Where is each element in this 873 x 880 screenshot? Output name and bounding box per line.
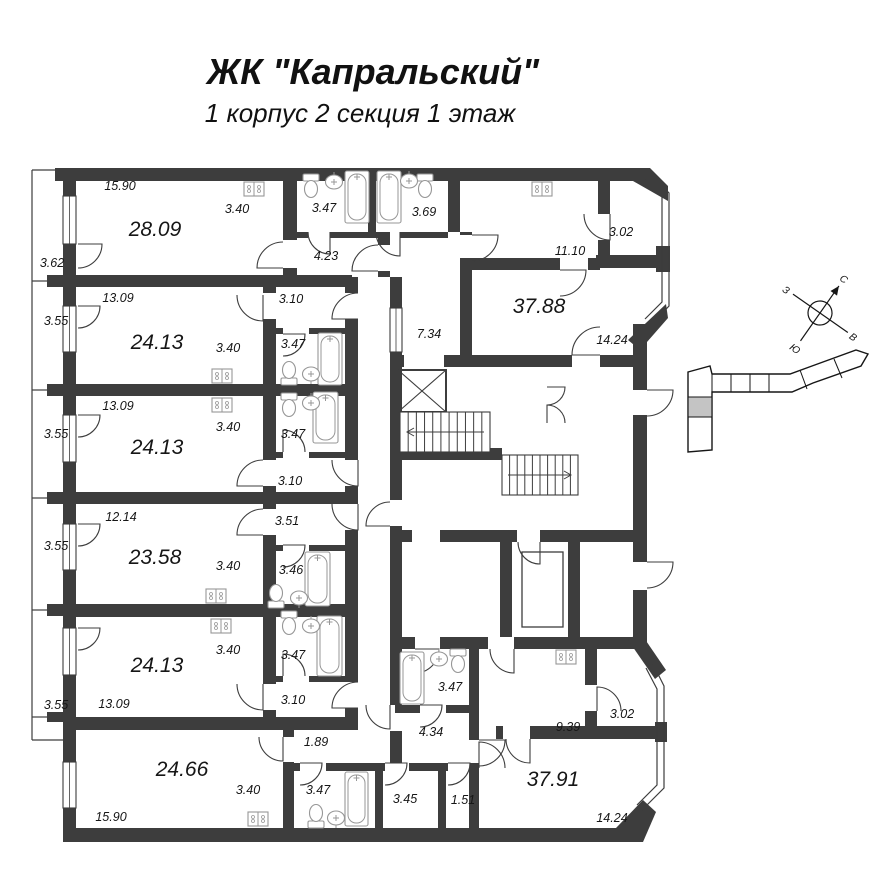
floor-plan-page: ЖК "Капральский" 1 корпус 2 секция 1 эта… <box>0 0 873 880</box>
building-minimap <box>688 350 868 452</box>
door-arc <box>584 214 610 240</box>
wall <box>263 287 276 293</box>
wall <box>63 275 352 287</box>
toilet-bowl <box>270 585 283 602</box>
dimension-label: 3.55 <box>44 539 68 553</box>
wall <box>47 492 63 504</box>
toilet-bowl <box>283 618 296 635</box>
area-label: 24.13 <box>130 654 184 677</box>
dimension-label: 3.40 <box>236 783 260 797</box>
wall <box>530 726 660 739</box>
shaft-box <box>522 552 563 627</box>
dimension-label: 3.47 <box>438 680 463 694</box>
bathtub-icon <box>377 171 401 223</box>
dimension-label: 3.10 <box>281 693 305 707</box>
stove-icon <box>212 369 232 383</box>
stove-icon <box>206 589 226 603</box>
stove-icon <box>244 182 264 196</box>
wall-chamfer <box>633 168 668 201</box>
door-arc <box>257 242 283 268</box>
door-arc <box>332 682 358 708</box>
wall <box>297 232 308 238</box>
sink-icon <box>431 649 448 666</box>
door-arc <box>332 504 358 530</box>
dimension-label: 11.10 <box>555 244 585 258</box>
dimension-label: 14.24 <box>596 333 627 347</box>
wall <box>63 384 352 396</box>
wall <box>63 352 76 415</box>
sink-icon <box>303 367 320 384</box>
wall <box>283 762 294 828</box>
wall <box>263 319 276 384</box>
dimension-label: 3.40 <box>216 341 240 355</box>
door-arc <box>259 737 283 761</box>
wall <box>63 492 352 504</box>
sink-icon <box>328 811 345 828</box>
door-arc <box>237 460 263 486</box>
stove-icon <box>212 398 232 412</box>
page-subtitle: 1 корпус 2 секция 1 этаж <box>205 98 517 128</box>
dimension-label: 3.51 <box>275 514 299 528</box>
dimension-label: 3.55 <box>44 427 68 441</box>
dimension-label: 9.39 <box>556 720 580 734</box>
minimap-outline <box>688 350 868 452</box>
dimension-label: 3.10 <box>279 292 303 306</box>
wall <box>500 542 512 637</box>
dimension-label: 3.02 <box>610 707 634 721</box>
wall <box>633 415 647 562</box>
wall <box>440 637 488 649</box>
area-label: 23.58 <box>128 546 182 569</box>
wall <box>596 255 660 268</box>
wall <box>345 530 358 682</box>
door-arc <box>506 739 530 763</box>
wall <box>378 271 390 277</box>
door-arc <box>472 235 498 261</box>
wall <box>460 232 472 235</box>
wall <box>47 712 63 722</box>
dimension-label: 12.14 <box>105 510 136 524</box>
door-arc <box>366 705 390 729</box>
stove-icon <box>248 812 268 826</box>
dimension-label: 3.10 <box>278 474 302 488</box>
area-label: 37.91 <box>527 768 580 791</box>
dimension-label: 3.69 <box>412 205 436 219</box>
wall <box>263 486 276 492</box>
wall <box>460 258 560 270</box>
door-arc <box>448 763 470 785</box>
wall <box>390 277 402 308</box>
wall <box>390 637 415 649</box>
wall <box>585 711 597 726</box>
area-label: 24.66 <box>155 758 209 781</box>
wall <box>446 705 469 713</box>
wall <box>390 530 412 542</box>
wall <box>276 452 283 458</box>
wall <box>283 763 300 771</box>
dimension-label: 13.09 <box>98 697 129 711</box>
wall <box>390 526 402 637</box>
door-arc <box>547 387 565 405</box>
toilet-bowl <box>305 181 318 198</box>
door-arc <box>479 742 505 768</box>
toilet-bowl <box>283 400 296 417</box>
compass-east-label: В <box>847 331 859 344</box>
elevator-icon <box>398 370 446 412</box>
wall <box>375 763 385 771</box>
stairs-icon <box>502 455 578 495</box>
wall <box>276 545 283 551</box>
door-arc <box>547 405 565 423</box>
compass-north-label: С <box>837 273 850 287</box>
wall <box>345 319 358 460</box>
wall <box>345 486 358 504</box>
dimension-label: 14.24 <box>596 811 627 825</box>
wall <box>568 542 580 637</box>
toilet-icon <box>308 805 324 829</box>
wall <box>276 676 283 682</box>
door-arc <box>385 763 407 785</box>
wall <box>460 261 472 355</box>
area-label: 24.13 <box>130 331 184 354</box>
wall <box>378 232 390 245</box>
dimension-label: 3.40 <box>216 559 240 573</box>
wall <box>330 232 378 238</box>
dimension-label: 7.34 <box>417 327 441 341</box>
door-arc <box>490 649 514 673</box>
wall <box>283 268 297 275</box>
toilet-icon <box>303 174 319 198</box>
wall <box>47 384 63 396</box>
dimension-label: 4.23 <box>314 249 338 263</box>
toilet-icon <box>281 611 297 635</box>
wall <box>469 705 479 740</box>
wall <box>263 617 276 684</box>
wall <box>585 649 597 685</box>
bathtub-icon <box>400 652 424 704</box>
wall <box>656 246 670 272</box>
dimension-label: 3.47 <box>281 648 306 662</box>
stove-icon <box>211 619 231 633</box>
wall <box>309 676 345 682</box>
area-label: 37.88 <box>513 295 566 318</box>
dimension-label: 4.34 <box>419 725 443 739</box>
door-arc <box>332 460 358 486</box>
dimension-label: 3.40 <box>216 643 240 657</box>
wall <box>263 504 276 509</box>
dimension-label: 13.09 <box>102 399 133 413</box>
wall <box>448 168 460 232</box>
minimap-current-section <box>689 397 711 417</box>
wall <box>496 726 503 739</box>
floor-plan-drawing: ЖК "Капральский" 1 корпус 2 секция 1 эта… <box>0 0 873 880</box>
door-arc <box>237 684 263 710</box>
wall <box>469 649 479 705</box>
area-label: 24.13 <box>130 436 184 459</box>
wall <box>395 705 420 713</box>
compass-ew-axis <box>793 294 848 332</box>
wall <box>470 763 479 771</box>
wall <box>283 730 294 737</box>
dimension-label: 3.40 <box>225 202 249 216</box>
dimension-label: 3.55 <box>44 698 68 712</box>
wall <box>309 452 345 458</box>
dimension-label: 1.51 <box>451 793 475 807</box>
wall <box>440 530 517 542</box>
door-arc <box>366 502 390 526</box>
dimension-label: 3.02 <box>609 225 633 239</box>
bathtub-icon <box>345 772 368 826</box>
area-label: 28.09 <box>128 218 182 241</box>
compass-rose: С Ю В З <box>755 250 873 380</box>
stair-core <box>398 370 578 627</box>
wall <box>390 355 404 367</box>
bathtub-icon <box>345 171 369 223</box>
door-arc <box>479 740 505 766</box>
door-arc <box>420 705 442 727</box>
toilet-icon <box>281 362 297 386</box>
wall <box>63 181 76 196</box>
door-arc <box>352 245 378 271</box>
dimension-label: 3.40 <box>216 420 240 434</box>
dimension-label: 3.62 <box>40 256 64 270</box>
door-arc <box>78 524 100 546</box>
door-arc <box>78 306 100 328</box>
door-arc <box>78 244 102 268</box>
door-arc <box>560 270 586 296</box>
toilet-icon <box>268 585 284 609</box>
dimension-label: 3.47 <box>281 337 306 351</box>
dimension-label: 3.55 <box>44 314 68 328</box>
stove-icon <box>556 650 576 664</box>
dimension-label: 3.46 <box>279 563 303 577</box>
wall <box>276 328 283 334</box>
door-arc <box>237 295 263 321</box>
toilet-icon <box>417 174 433 198</box>
toilet-bowl <box>283 362 296 379</box>
page-title: ЖК "Капральский" <box>205 51 540 92</box>
dimension-label: 13.09 <box>102 291 133 305</box>
door-arc <box>78 415 100 437</box>
toilet-icon <box>281 393 297 417</box>
bathtub-icon <box>318 333 342 385</box>
wall <box>345 708 358 717</box>
wall <box>409 763 448 771</box>
door-arc <box>78 628 100 650</box>
north-arrow-icon <box>830 284 842 296</box>
bathtub-icon <box>305 552 330 606</box>
wall <box>63 828 643 842</box>
dimension-label: 15.90 <box>95 810 126 824</box>
dimension-label: 3.47 <box>281 427 306 441</box>
wall <box>400 232 448 238</box>
door-arc <box>237 509 263 535</box>
dimension-label: 3.45 <box>393 792 417 806</box>
wall <box>633 367 647 390</box>
dimension-label: 3.47 <box>306 783 331 797</box>
door-arc <box>332 293 358 319</box>
door-arc <box>647 390 673 416</box>
dimension-label: 1.89 <box>304 735 328 749</box>
wall <box>326 763 383 771</box>
wall <box>598 181 610 214</box>
wall <box>309 545 345 551</box>
stairs-icon <box>400 412 490 452</box>
wall <box>47 275 63 287</box>
wall <box>47 604 63 616</box>
toilet-bowl <box>452 656 465 673</box>
compass-south-label: Ю <box>787 342 802 357</box>
door-arc <box>647 562 673 588</box>
toilet-bowl <box>419 181 432 198</box>
wall <box>263 710 276 717</box>
toilet-bowl <box>310 805 323 822</box>
wall <box>63 717 358 730</box>
compass-west-label: З <box>780 284 791 297</box>
wall <box>345 277 358 293</box>
stove-icon <box>532 182 552 196</box>
dimension-label: 15.90 <box>104 179 135 193</box>
wall <box>63 570 76 628</box>
wall <box>390 731 402 763</box>
wall <box>438 771 446 828</box>
wall <box>283 168 297 240</box>
door-arc <box>300 763 322 785</box>
bathtub-icon <box>317 616 342 676</box>
toilet-icon <box>450 649 466 673</box>
wall <box>444 355 572 367</box>
dimension-label: 3.47 <box>312 201 337 215</box>
wall <box>375 771 383 828</box>
wall <box>540 530 633 542</box>
door-arc <box>518 542 540 564</box>
wall <box>514 637 647 649</box>
wall <box>263 396 276 460</box>
